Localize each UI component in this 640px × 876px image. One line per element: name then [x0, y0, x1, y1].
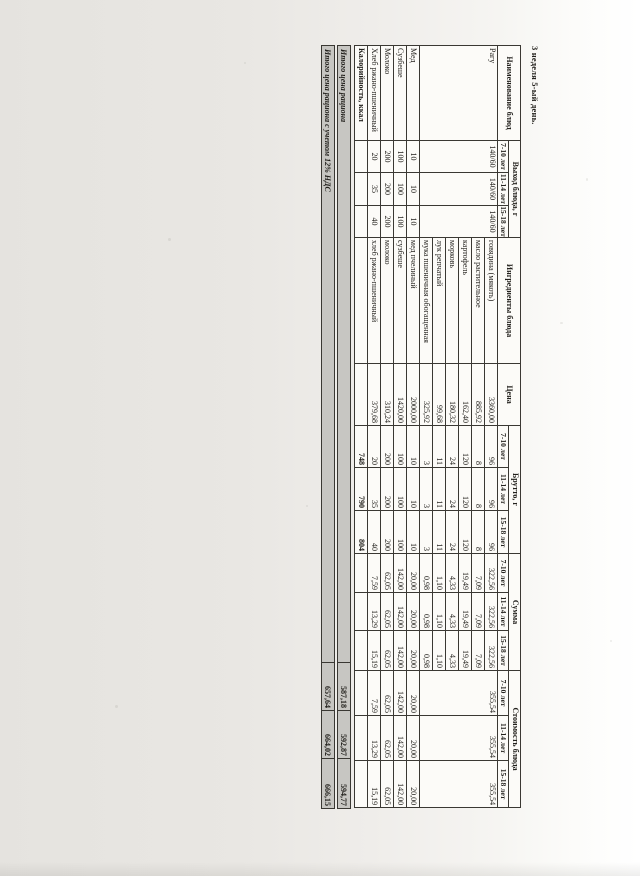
cell-empty — [354, 141, 367, 173]
sum-cell: 0,98 — [419, 593, 432, 631]
output-cell: 140/60 — [419, 141, 497, 173]
gross-cell: 35 — [367, 468, 380, 511]
table-row: Сузбеше 100 100 100 сузбеше 1420,00 100 … — [393, 46, 406, 808]
gross-cell: 8 — [471, 511, 484, 554]
gross-cell: 10 — [406, 426, 419, 468]
cost-cell: 142,00 — [393, 716, 406, 761]
gross-cell: 100 — [393, 511, 406, 554]
sum-cell: 20,00 — [406, 631, 419, 671]
scanned-page: 3 неделя 5-ый день. Наименование блюд Вы… — [0, 0, 640, 876]
sum-cell: 62,05 — [380, 554, 393, 593]
cost-cell: 142,00 — [393, 671, 406, 716]
age-group-header: 15-18 лет — [497, 631, 508, 671]
gross-cell: 120 — [458, 511, 471, 554]
gross-cell: 10 — [406, 511, 419, 554]
output-cell: 40 — [367, 206, 380, 238]
sum-cell: 7,09 — [471, 593, 484, 631]
totals-row-ration-vat: Итого цена рациона с учетом 12% НДС 657,… — [321, 45, 335, 809]
output-cell: 100 — [393, 173, 406, 206]
output-cell: 140/60 — [419, 206, 497, 238]
cell-empty — [354, 716, 367, 761]
output-cell: 200 — [380, 141, 393, 173]
sum-cell: 4,33 — [445, 554, 458, 593]
gross-cell: 20 — [367, 426, 380, 468]
gross-cell: 11 — [432, 426, 445, 468]
gross-cell: 24 — [445, 511, 458, 554]
ingredient-cell: сузбеше — [393, 238, 406, 364]
ingredient-cell: масло растительное — [471, 238, 484, 364]
cell-empty — [354, 631, 367, 671]
gross-cell: 8 — [471, 426, 484, 468]
sum-cell: 0,98 — [419, 631, 432, 671]
cost-cell: 62,05 — [380, 716, 393, 761]
ingredient-cell: хлеб ржано-пшеничный — [367, 238, 380, 364]
col-header-cost: Стоимость блюда — [509, 671, 521, 808]
dish-name-cell: Хлеб ржано-пшеничный — [367, 46, 380, 141]
col-header-output: Выход блюда, г — [509, 141, 521, 238]
age-group-header: 7-10 лет — [497, 141, 508, 173]
price-cell: 3360,00 — [484, 364, 497, 426]
sum-cell: 4,33 — [445, 631, 458, 671]
gross-cell: 200 — [380, 468, 393, 511]
age-group-header: 11-14 лет — [497, 468, 508, 511]
ingredient-cell: морковь — [445, 238, 458, 364]
dish-name-cell: Мед — [406, 46, 419, 141]
price-cell: 325,92 — [419, 364, 432, 426]
menu-costing-block: Наименование блюд Выход блюда, г Ингреди… — [321, 45, 521, 809]
totals-value: 587,18 — [338, 662, 350, 710]
age-group-header: 11-14 лет — [497, 173, 508, 206]
calories-row: Калорийность, ккал 748 790 804 — [354, 46, 367, 808]
gross-cell: 10 — [406, 468, 419, 511]
col-header-gross: Брутто, г — [509, 426, 521, 554]
age-group-header: 7-10 лет — [497, 554, 508, 593]
cost-cell: 7,59 — [367, 671, 380, 716]
price-cell: 379,68 — [367, 364, 380, 426]
table-row: Хлеб ржано-пшеничный 20 35 40 хлеб ржано… — [367, 46, 380, 808]
gross-cell: 200 — [380, 511, 393, 554]
gross-cell: 11 — [432, 511, 445, 554]
sum-cell: 7,09 — [471, 631, 484, 671]
price-cell: 1420,00 — [393, 364, 406, 426]
output-cell: 100 — [393, 141, 406, 173]
dish-name-cell: Молоко — [380, 46, 393, 141]
cost-cell: 20,00 — [406, 716, 419, 761]
output-cell: 200 — [380, 173, 393, 206]
output-cell: 200 — [380, 206, 393, 238]
gross-cell: 40 — [367, 511, 380, 554]
sum-cell: 62,05 — [380, 593, 393, 631]
dish-name-cell: Сузбеше — [393, 46, 406, 141]
gross-cell: 96 — [484, 511, 497, 554]
cost-cell: 355,54 — [419, 761, 497, 808]
rotated-content: 3 неделя 5-ый день. Наименование блюд Вы… — [0, 0, 640, 876]
sum-cell: 322,56 — [484, 593, 497, 631]
ingredient-cell: лук репчатый — [432, 238, 445, 364]
gross-cell: 96 — [484, 426, 497, 468]
sum-cell: 142,00 — [393, 631, 406, 671]
cell-empty — [354, 761, 367, 808]
table-row: Молоко 200 200 200 молоко 310,24 200 200… — [380, 46, 393, 808]
sum-cell: 1,10 — [432, 631, 445, 671]
sum-cell: 7,09 — [471, 554, 484, 593]
dish-name-cell: Рагу — [419, 46, 497, 141]
gross-cell: 3 — [419, 511, 432, 554]
calories-value-cell: 790 — [354, 468, 367, 511]
sum-cell: 142,00 — [393, 554, 406, 593]
totals-value: 657,64 — [322, 662, 334, 710]
totals-label: Итого цена рациона — [338, 46, 350, 662]
sum-cell: 62,05 — [380, 631, 393, 671]
cost-cell: 62,05 — [380, 671, 393, 716]
sum-cell: 4,33 — [445, 593, 458, 631]
cell-empty — [354, 593, 367, 631]
gross-cell: 200 — [380, 426, 393, 468]
col-header-price: Цена — [497, 364, 520, 426]
cell-empty — [354, 554, 367, 593]
totals-value: 592,87 — [338, 710, 350, 758]
sum-cell: 1,10 — [432, 554, 445, 593]
cell-empty — [354, 238, 367, 364]
cell-empty — [354, 671, 367, 716]
sum-cell: 13,29 — [367, 593, 380, 631]
sum-cell: 322,56 — [484, 554, 497, 593]
gross-cell: 120 — [458, 426, 471, 468]
cost-cell: 355,54 — [419, 671, 497, 716]
calories-label-cell: Калорийность, ккал — [354, 46, 367, 141]
cell-empty — [354, 206, 367, 238]
totals-row-ration: Итого цена рациона 587,18 592,87 594,77 — [337, 45, 351, 809]
gross-cell: 3 — [419, 468, 432, 511]
gross-cell: 120 — [458, 468, 471, 511]
output-cell: 100 — [393, 206, 406, 238]
col-header-dish: Наименование блюд — [497, 46, 520, 141]
cost-cell: 20,00 — [406, 671, 419, 716]
age-group-header: 15-18 лет — [497, 206, 508, 238]
menu-table: Наименование блюд Выход блюда, г Ингреди… — [354, 45, 521, 808]
cost-cell: 15,19 — [367, 761, 380, 808]
output-cell: 140/60 — [419, 173, 497, 206]
price-cell: 180,32 — [445, 364, 458, 426]
header-row-groups: Наименование блюд Выход блюда, г Ингреди… — [509, 46, 521, 808]
sum-cell: 20,00 — [406, 554, 419, 593]
output-cell: 20 — [367, 141, 380, 173]
sum-cell: 1,10 — [432, 593, 445, 631]
sum-cell: 20,00 — [406, 593, 419, 631]
price-cell: 99,68 — [432, 364, 445, 426]
sum-cell: 0,98 — [419, 554, 432, 593]
cost-cell: 20,00 — [406, 761, 419, 808]
age-group-header: 15-18 лет — [497, 511, 508, 554]
totals-value: 594,77 — [338, 758, 350, 808]
price-cell: 162,40 — [458, 364, 471, 426]
calories-value-cell: 804 — [354, 511, 367, 554]
totals-value: 666,15 — [322, 758, 334, 808]
totals-label: Итого цена рациона с учетом 12% НДС — [322, 46, 334, 662]
age-group-header: 11-14 лет — [497, 716, 508, 761]
cell-empty — [354, 364, 367, 426]
gross-cell: 24 — [445, 426, 458, 468]
gross-cell: 96 — [484, 468, 497, 511]
age-group-header: 7-10 лет — [497, 426, 508, 468]
gross-cell: 100 — [393, 426, 406, 468]
sum-cell: 15,19 — [367, 631, 380, 671]
age-group-header: 11-14 лет — [497, 593, 508, 631]
sum-cell: 19,49 — [458, 554, 471, 593]
output-cell: 35 — [367, 173, 380, 206]
table-row: Рагу 140/60 140/60 140/60 говядина (мяко… — [484, 46, 497, 808]
price-cell: 885,92 — [471, 364, 484, 426]
gross-cell: 11 — [432, 468, 445, 511]
age-group-header: 15-18 лет — [497, 761, 508, 808]
table-row: Мед 10 10 10 мед пчелиный 2000,00 10 10 … — [406, 46, 419, 808]
ingredient-cell: молоко — [380, 238, 393, 364]
page-title: 3 неделя 5-ый день. — [530, 46, 540, 125]
ingredient-cell: говядина (мякоть) — [484, 238, 497, 364]
gross-cell: 8 — [471, 468, 484, 511]
col-header-sum: Сумма — [509, 554, 521, 671]
gross-cell: 24 — [445, 468, 458, 511]
sum-cell: 19,49 — [458, 593, 471, 631]
output-cell: 10 — [406, 141, 419, 173]
ingredient-cell: мука пшеничная обогащенная — [419, 238, 432, 364]
cost-cell: 62,05 — [380, 761, 393, 808]
output-cell: 10 — [406, 173, 419, 206]
gross-cell: 3 — [419, 426, 432, 468]
gross-cell: 100 — [393, 468, 406, 511]
header-row-ages: 7-10 лет 11-14 лет 15-18 лет 7-10 лет 11… — [497, 46, 508, 808]
price-cell: 2000,00 — [406, 364, 419, 426]
output-cell: 10 — [406, 206, 419, 238]
sum-cell: 19,49 — [458, 631, 471, 671]
cost-cell: 142,00 — [393, 761, 406, 808]
totals-value: 664,02 — [322, 710, 334, 758]
ingredient-cell: мед пчелиный — [406, 238, 419, 364]
sum-cell: 322,56 — [484, 631, 497, 671]
sum-cell: 7,59 — [367, 554, 380, 593]
col-header-ingredients: Ингредиенты блюда — [497, 238, 520, 364]
calories-value-cell: 748 — [354, 426, 367, 468]
ingredient-cell: картофель — [458, 238, 471, 364]
age-group-header: 7-10 лет — [497, 671, 508, 716]
price-cell: 310,24 — [380, 364, 393, 426]
cost-cell: 355,54 — [419, 716, 497, 761]
cell-empty — [354, 173, 367, 206]
sum-cell: 142,00 — [393, 593, 406, 631]
cost-cell: 13,29 — [367, 716, 380, 761]
